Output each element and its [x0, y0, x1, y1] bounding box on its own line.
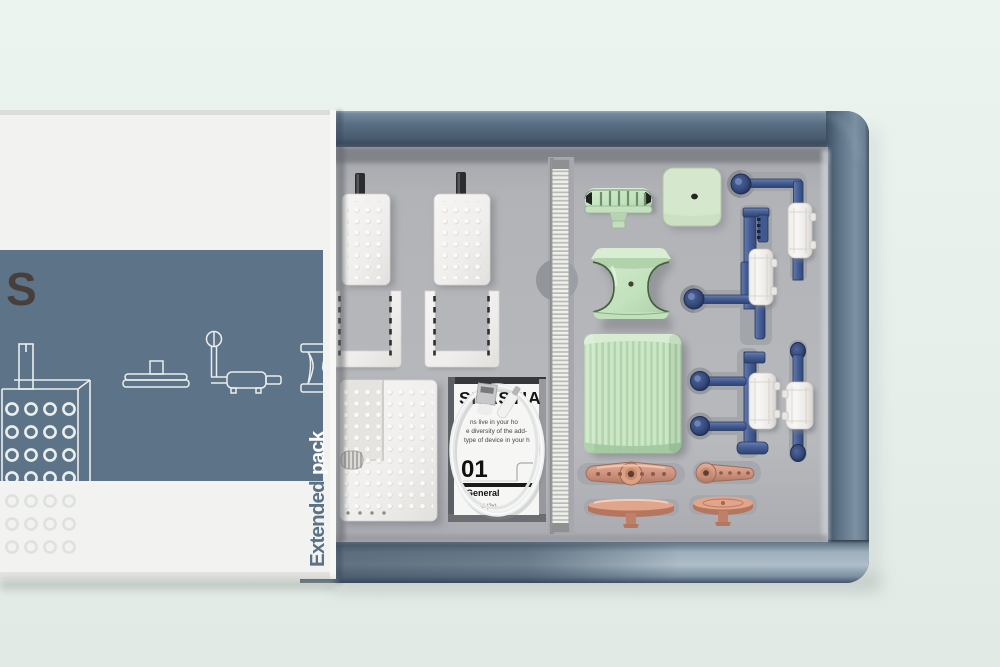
svg-text:type of device in your h: type of device in your h — [464, 437, 530, 444]
svg-text:Extended: Extended — [306, 481, 329, 567]
svg-text:01: 01 — [461, 456, 488, 483]
svg-text:ns live in your ho: ns live in your ho — [470, 419, 518, 426]
svg-text:e diversity of the add-: e diversity of the add- — [466, 428, 527, 435]
svg-text:pack: pack — [306, 430, 329, 475]
svg-text:S: S — [6, 263, 37, 315]
